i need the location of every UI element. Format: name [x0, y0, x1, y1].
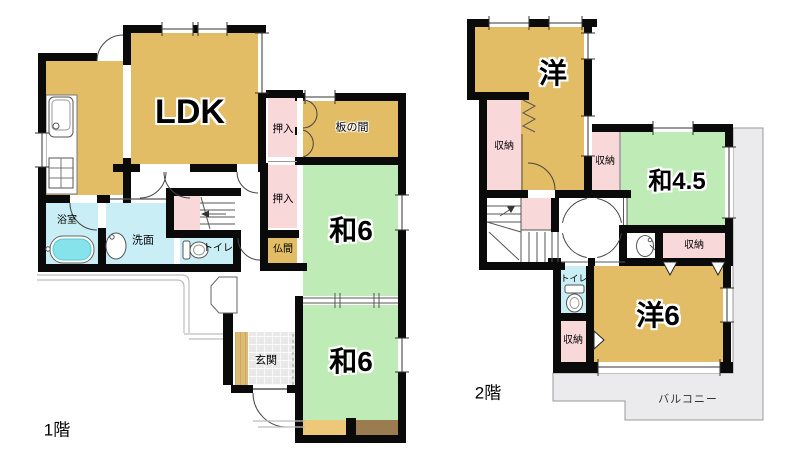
room-label-shuno-stair: 収納: [494, 142, 514, 152]
room-yoshitsu-fill-lower: [521, 92, 584, 190]
room-yoshitsu-fill-upper: [475, 27, 584, 92]
sink-drain-icon: [53, 123, 59, 129]
room-label-ldk: LDK: [155, 95, 225, 129]
toilet2-icon: [565, 285, 584, 312]
kitchen-counter: [46, 95, 77, 194]
room-label-genkan: 玄関: [255, 356, 277, 367]
room-label-oshiire-upper: 押入: [273, 124, 294, 135]
room-label-washitsu-east: 和6: [329, 217, 373, 245]
room-label-butsuma: 仏間: [273, 245, 293, 255]
room-label-washroom: 洗面: [132, 236, 154, 247]
room-label-shuno-hall: 収納: [684, 241, 704, 251]
room-label-washitsu45: 和4.5: [648, 170, 705, 194]
room-label-itanoma: 板の間: [336, 123, 369, 134]
room-label-bathroom: 浴室: [57, 216, 77, 226]
entry-bay-window: [211, 277, 237, 313]
floorplan-canvas: LDK 板の間 押入 押入 和6 仏間 和6 浴室 洗面 トイレ 玄関 1階 洋…: [0, 0, 800, 466]
balcony-label: バルコニー: [658, 395, 718, 406]
room-label-oshiire-lower: 押入: [273, 194, 294, 205]
hall-basin-icon: [637, 236, 656, 257]
stairs2-arrow-icon: [507, 206, 515, 213]
tokonoma-strip: [356, 420, 398, 435]
floor1-label: 1階: [44, 422, 70, 439]
room-label-yoshitsu6: 洋6: [636, 302, 680, 330]
genkan-wood-step: [235, 332, 248, 385]
understair-closet-fill: [521, 198, 551, 230]
floor2-plan: [467, 16, 763, 420]
engawa-strip: [303, 420, 346, 435]
washbasin-icon: [106, 233, 126, 259]
hall-closet-fill: [174, 196, 200, 230]
room-label-shuno-south: 収納: [563, 336, 583, 346]
floor2-label: 2階: [475, 385, 501, 402]
room-label-toilet1: トイレ: [203, 244, 233, 254]
room-label-toilet2: トイレ: [560, 275, 587, 284]
room-label-shuno-center: 収納: [595, 157, 615, 167]
room-label-washitsu-south: 和6: [329, 348, 373, 376]
room-label-yoshitsu: 洋: [539, 60, 567, 88]
bathtub-icon: [46, 236, 94, 263]
